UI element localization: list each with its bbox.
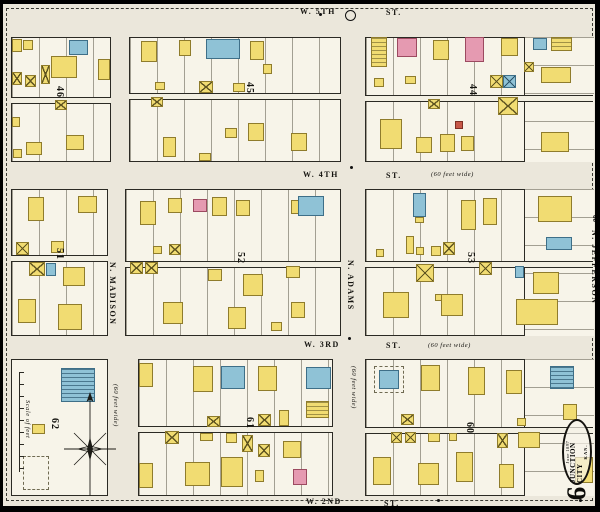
street-label-adams: N. ADAMS [346,260,355,311]
block-number-60: 60 [464,422,475,434]
street-label-w5th: W. 5TH [300,7,336,16]
block-number-62: 62 [49,418,60,430]
street-label-madison: N. MADISON [108,262,117,325]
street-dot [579,499,582,502]
stamp-state: KAN. [584,444,589,459]
block-number-52: 52 [235,252,246,264]
street-dot [319,13,322,16]
street-width-jefferson: 60 [591,215,595,222]
street-type-w2nd: ST. [384,499,400,506]
map-canvas: W. 5TH ST. W. 4TH ST. (60 feet wide) W. … [3,4,595,506]
sheet-number: 9 [560,487,591,501]
stamp-city: JUNCTION CITY [570,421,584,483]
street-dot [437,499,440,502]
street-type-w3rd: ST. [386,341,402,350]
street-label-jefferson: N. JEFFERSON [590,230,595,304]
street-note-w4th: (60 feet wide) [431,171,474,178]
block-number-44: 44 [467,84,478,96]
street-dot [348,337,351,340]
street-label-w3rd: W. 3RD [304,340,340,349]
sanborn-sheet: W. 5TH ST. W. 4TH ST. (60 feet wide) W. … [0,0,600,512]
block-number-51: 51 [54,248,65,260]
street-type-w4th: ST. [386,171,402,180]
publisher-stamp: June 1897 JUNCTION CITY KAN. [562,419,592,485]
street-type-w5th: ST. [386,8,402,17]
labels-layer: W. 5TH ST. W. 4TH ST. (60 feet wide) W. … [3,4,595,506]
street-circle-symbol [345,10,356,21]
block-number-61: 61 [244,417,255,429]
street-label-w4th: W. 4TH [303,170,339,179]
street-dot [350,166,353,169]
street-note-w3rd: (60 feet wide) [428,342,471,349]
block-number-45: 45 [244,82,255,94]
compass-rose-icon [63,392,119,496]
block-number-46: 46 [54,86,65,98]
scale-label: Scale of feet [24,400,31,438]
block-number-53: 53 [465,252,476,264]
street-note-adams: (60 feet wide) [350,366,357,409]
street-label-w2nd: W. 2ND [306,497,342,506]
